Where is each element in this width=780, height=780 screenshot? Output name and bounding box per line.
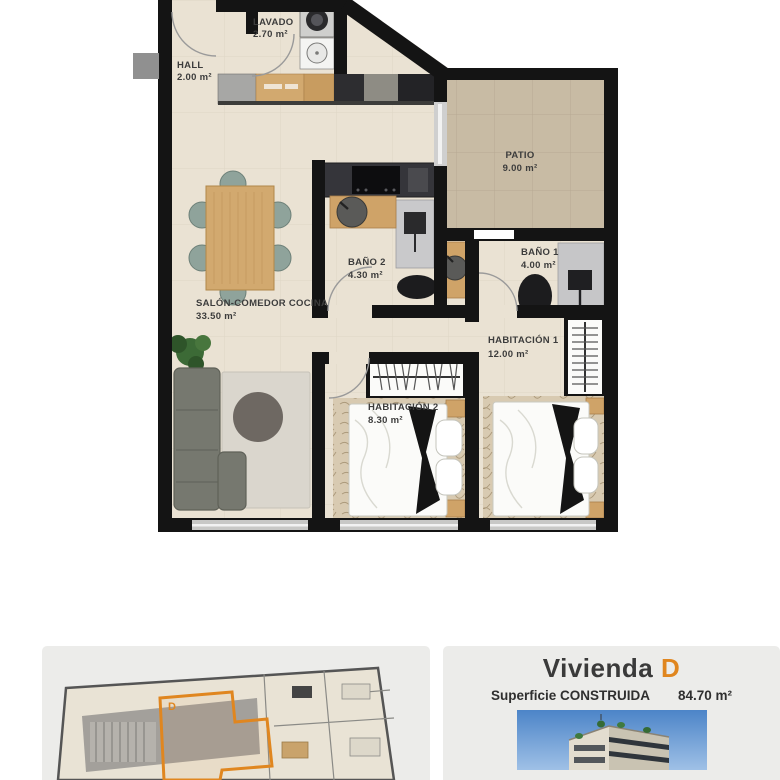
building-photo-svg (517, 710, 707, 770)
room-area-salon: 33.50 m² (196, 311, 236, 322)
bed-hab1 (483, 396, 605, 524)
site-plan-card: D (42, 646, 430, 780)
floor-plan-svg: HALL 2.00 m² LAVADO 2.70 m² PATIO 9.00 m… (0, 0, 780, 646)
wardrobe-hab1 (566, 318, 604, 396)
room-label-hab1: HABITACIÓN 1 (488, 334, 559, 346)
room-area-bano2: 4.30 m² (348, 270, 383, 281)
main-floor-plan: HALL 2.00 m² LAVADO 2.70 m² PATIO 9.00 m… (0, 0, 780, 646)
room-label-salon: SALÓN-COMEDOR COCINA (196, 297, 328, 309)
room-area-patio: 9.00 m² (503, 163, 538, 174)
unit-d-marker: D (168, 701, 176, 713)
surface-value: 84.70 m² (678, 688, 732, 703)
room-area-hab2: 8.30 m² (368, 415, 403, 426)
brochure-page: HALL 2.00 m² LAVADO 2.70 m² PATIO 9.00 m… (0, 0, 780, 780)
room-area-hall: 2.00 m² (177, 72, 212, 83)
room-label-lavado: LAVADO (253, 17, 294, 28)
room-label-bano2: BAÑO 2 (348, 257, 386, 268)
roof-plant-icon (575, 733, 583, 739)
unit-title: Vivienda D (543, 653, 680, 684)
unit-title-prefix: Vivienda (543, 653, 653, 683)
room-label-hall: HALL (177, 60, 204, 71)
utility-box (133, 53, 159, 79)
unit-letter: D (661, 653, 680, 683)
unit-info-card: Vivienda D Superficie CONSTRUIDA 84.70 m… (443, 646, 780, 780)
room-area-lavado: 2.70 m² (253, 29, 288, 40)
room-label-patio: PATIO (505, 150, 534, 161)
kitchen-island (320, 163, 437, 197)
room-label-bano1: BAÑO 1 (521, 247, 559, 258)
surface-label: Superficie CONSTRUIDA (491, 688, 650, 703)
footer: D Vivienda D Superficie CONSTRUIDA 84.70… (0, 646, 780, 780)
room-label-hab2: HABITACIÓN 2 (368, 401, 438, 413)
washer-dryer-icon (300, 4, 334, 69)
building-photo (517, 710, 707, 770)
room-area-bano1: 4.00 m² (521, 260, 556, 271)
surface-row: Superficie CONSTRUIDA 84.70 m² (491, 688, 732, 703)
kitchen-counter (218, 74, 434, 105)
sofa (174, 368, 310, 510)
bed-hab2 (333, 398, 473, 524)
room-area-hab1: 12.00 m² (488, 349, 528, 360)
mini-site-plan: D (42, 646, 430, 780)
